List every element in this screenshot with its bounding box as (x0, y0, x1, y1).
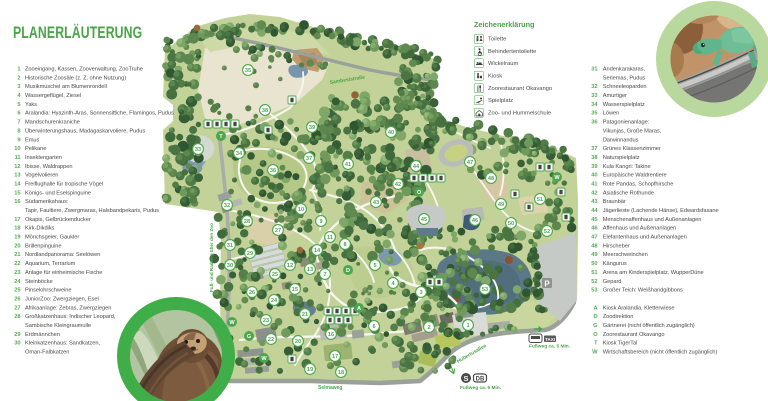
svg-text:1: 1 (466, 323, 469, 329)
svg-text:38: 38 (262, 108, 268, 114)
svg-text:29: 29 (247, 251, 253, 257)
svg-text:32: 32 (224, 203, 230, 209)
svg-text:7: 7 (323, 272, 326, 278)
svg-text:18: 18 (338, 370, 344, 376)
svg-text:31: 31 (227, 243, 233, 249)
svg-text:41: 41 (345, 162, 351, 168)
svg-text:3: 3 (419, 290, 422, 296)
svg-text:25: 25 (272, 272, 278, 278)
svg-text:24: 24 (271, 298, 278, 304)
svg-text:30: 30 (227, 263, 233, 269)
svg-text:51: 51 (537, 197, 543, 203)
svg-text:5: 5 (373, 263, 376, 269)
svg-text:37: 37 (306, 156, 312, 162)
svg-text:23: 23 (263, 318, 269, 324)
svg-text:11: 11 (327, 235, 333, 241)
svg-text:27: 27 (275, 228, 281, 234)
svg-text:Selmaweg: Selmaweg (318, 385, 342, 391)
svg-text:26: 26 (249, 290, 255, 296)
svg-text:10: 10 (298, 207, 304, 213)
svg-text:34: 34 (236, 151, 243, 157)
svg-text:28: 28 (244, 219, 250, 225)
svg-text:39: 39 (309, 125, 315, 131)
svg-text:6: 6 (372, 324, 375, 330)
svg-text:33: 33 (195, 147, 201, 153)
svg-text:47: 47 (467, 160, 473, 166)
svg-text:19: 19 (307, 367, 313, 373)
svg-text:Fußweg ca. 5 Min.: Fußweg ca. 5 Min. (460, 385, 501, 391)
svg-text:DB: DB (476, 377, 485, 383)
svg-text:G: G (247, 334, 251, 340)
svg-text:12: 12 (287, 263, 293, 269)
svg-text:W: W (554, 175, 560, 181)
svg-text:Fuß- und Radweg über den Zoo: Fuß- und Radweg über den Zoo (209, 223, 214, 292)
svg-text:T: T (219, 134, 223, 140)
svg-text:O: O (417, 190, 422, 196)
svg-text:43: 43 (373, 200, 379, 206)
svg-text:Fußweg ca. 5 Min.: Fußweg ca. 5 Min. (529, 344, 570, 350)
svg-text:W: W (229, 320, 235, 326)
svg-text:15: 15 (292, 287, 298, 293)
svg-text:9: 9 (319, 219, 322, 225)
svg-text:P: P (544, 280, 550, 289)
svg-text:52: 52 (544, 229, 550, 235)
svg-text:2: 2 (427, 325, 430, 331)
svg-text:40: 40 (388, 130, 394, 136)
svg-text:14: 14 (314, 248, 321, 254)
svg-text:TAXI: TAXI (545, 337, 555, 342)
svg-text:21: 21 (302, 312, 308, 318)
svg-text:46: 46 (472, 218, 478, 224)
svg-text:16: 16 (328, 332, 334, 338)
svg-text:S: S (463, 374, 468, 383)
svg-text:45: 45 (421, 217, 427, 223)
svg-text:17: 17 (332, 354, 338, 360)
svg-text:D: D (346, 268, 350, 274)
svg-text:8: 8 (343, 242, 346, 248)
svg-text:13: 13 (307, 267, 313, 273)
svg-text:48: 48 (488, 176, 494, 182)
svg-text:42: 42 (395, 182, 401, 188)
svg-text:20: 20 (295, 339, 301, 345)
svg-text:53: 53 (482, 287, 488, 293)
svg-text:W: W (261, 356, 267, 362)
svg-text:A: A (357, 306, 361, 312)
svg-text:22: 22 (268, 337, 274, 343)
svg-text:44: 44 (413, 164, 420, 170)
svg-text:49: 49 (498, 202, 504, 208)
svg-text:36: 36 (270, 168, 276, 174)
svg-text:35: 35 (245, 68, 251, 74)
svg-text:50: 50 (508, 221, 514, 227)
